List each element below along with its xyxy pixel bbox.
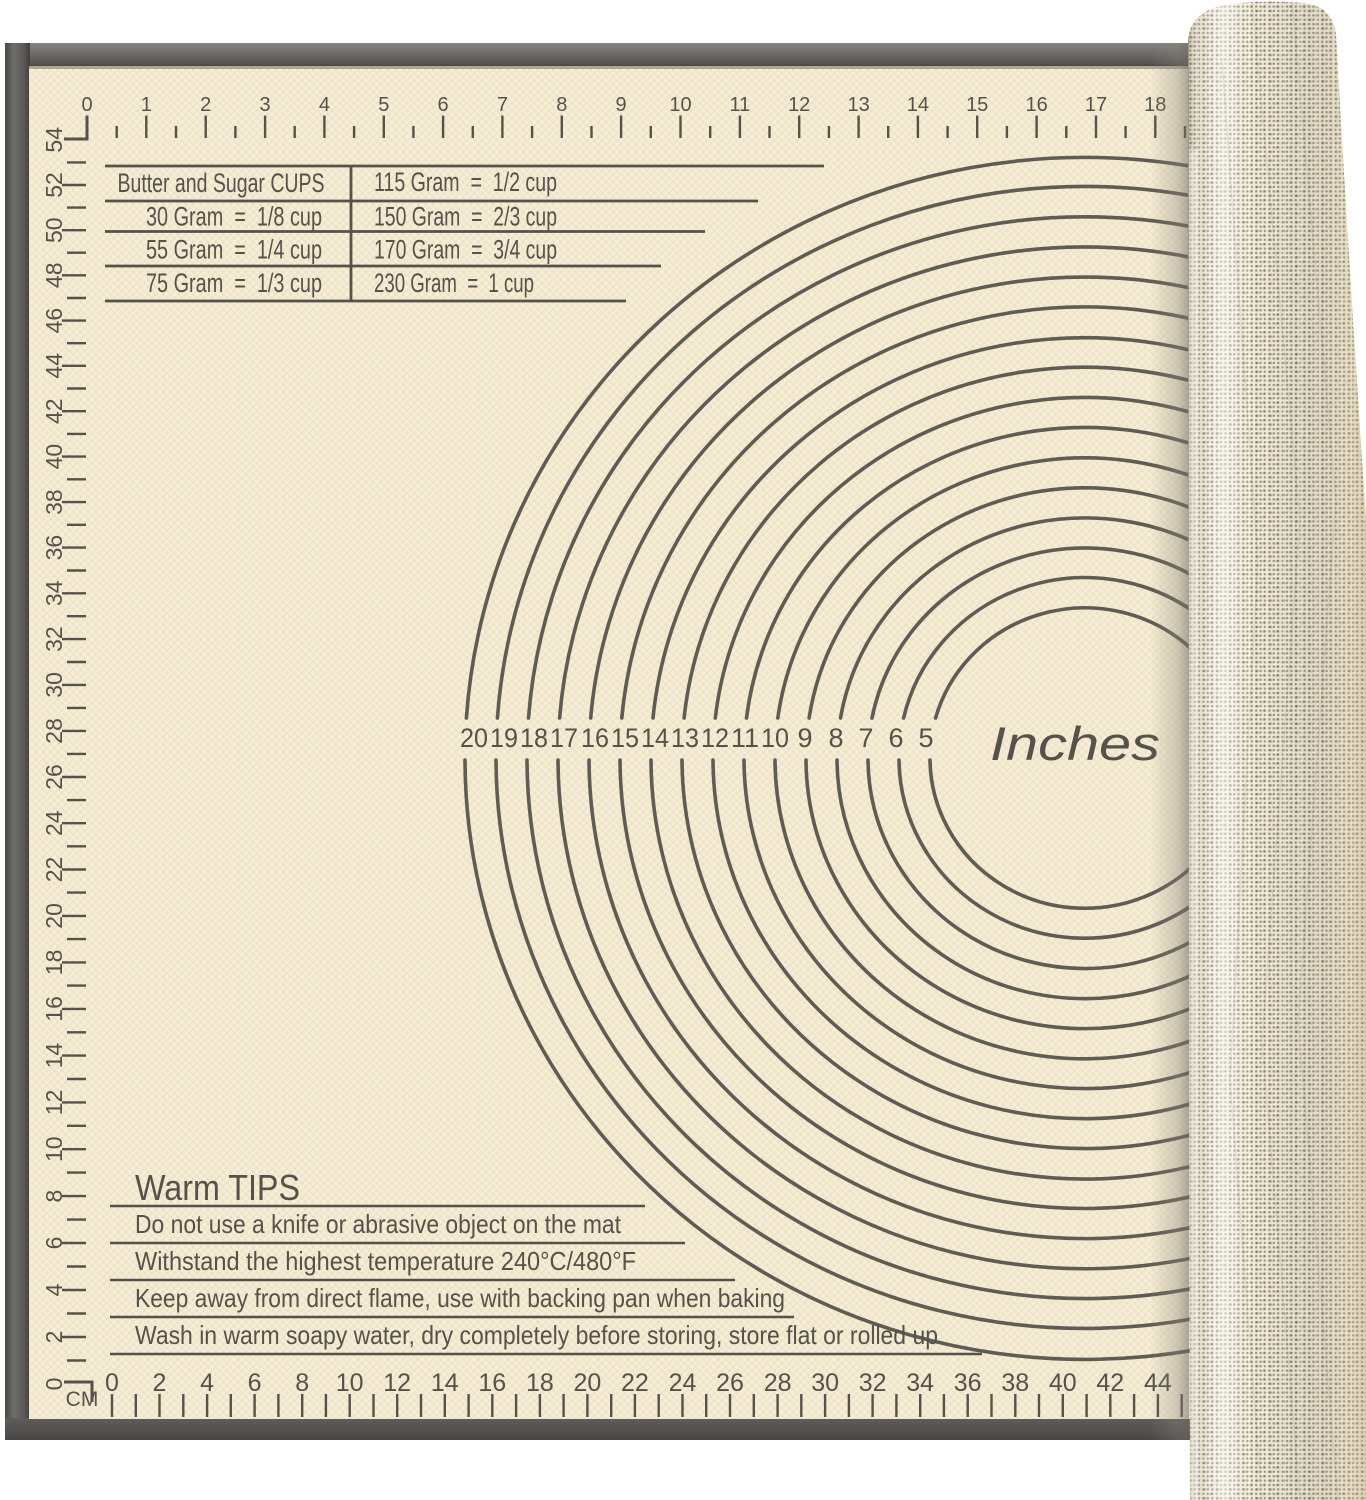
svg-text:40: 40 [41,444,67,470]
svg-text:6: 6 [41,1237,67,1250]
svg-text:34: 34 [41,580,67,606]
svg-text:36: 36 [954,1369,982,1397]
svg-text:16: 16 [41,996,67,1022]
svg-text:10: 10 [41,1136,67,1162]
svg-text:10: 10 [669,94,691,116]
svg-text:16: 16 [478,1369,506,1397]
svg-text:0: 0 [105,1369,119,1397]
svg-text:12: 12 [383,1369,411,1397]
svg-text:18: 18 [41,950,67,976]
svg-text:Wash in warm soapy water, dry: Wash in warm soapy water, dry completely… [135,1320,938,1350]
svg-text:24: 24 [41,810,67,836]
svg-text:34: 34 [906,1369,934,1397]
svg-text:44: 44 [41,353,67,379]
svg-text:18: 18 [520,723,548,753]
svg-text:22: 22 [41,857,67,883]
svg-text:Warm TIPS: Warm TIPS [135,1167,300,1208]
svg-text:6: 6 [438,94,449,116]
svg-text:54: 54 [41,127,67,153]
svg-text:13: 13 [847,94,869,116]
svg-text:10: 10 [336,1369,364,1397]
svg-text:42: 42 [41,398,67,424]
svg-text:13: 13 [671,723,699,753]
svg-text:5: 5 [378,94,389,116]
svg-text:12: 12 [41,1090,67,1116]
svg-text:8: 8 [41,1190,67,1203]
svg-text:15: 15 [966,94,988,116]
svg-text:8: 8 [295,1369,309,1397]
svg-text:18: 18 [526,1369,554,1397]
svg-text:115 Gram = 1/2 cup: 115 Gram = 1/2 cup [374,167,557,197]
svg-text:26: 26 [41,764,67,790]
svg-text:2: 2 [153,1369,167,1397]
svg-text:170 Gram = 3/4 cup: 170 Gram = 3/4 cup [374,235,557,265]
svg-text:46: 46 [41,308,67,334]
svg-text:30 Gram = 1/8 cup: 30 Gram = 1/8 cup [146,202,322,232]
svg-text:50: 50 [41,217,67,243]
svg-text:14: 14 [641,723,669,753]
svg-text:Do not use a knife or abrasive: Do not use a knife or abrasive object on… [135,1209,622,1239]
svg-text:30: 30 [41,672,67,698]
svg-text:7: 7 [858,723,873,753]
svg-text:6: 6 [888,723,903,753]
svg-text:Withstand the highest temperat: Withstand the highest temperature 240°C/… [135,1246,636,1276]
svg-text:5: 5 [918,723,933,753]
svg-text:11: 11 [731,723,759,753]
svg-text:7: 7 [497,94,508,116]
svg-text:17: 17 [550,723,578,753]
svg-text:20: 20 [41,903,67,929]
svg-text:10: 10 [761,723,789,753]
svg-text:38: 38 [41,489,67,515]
svg-text:55 Gram = 1/4 cup: 55 Gram = 1/4 cup [146,235,322,265]
svg-text:17: 17 [1085,94,1107,116]
svg-text:22: 22 [621,1369,649,1397]
svg-text:38: 38 [1001,1369,1029,1397]
svg-text:0: 0 [41,1378,67,1391]
svg-text:20: 20 [573,1369,601,1397]
svg-text:24: 24 [669,1369,697,1397]
svg-text:30: 30 [811,1369,839,1397]
svg-text:12: 12 [701,723,729,753]
svg-text:14: 14 [41,1043,67,1069]
svg-text:48: 48 [41,263,67,289]
svg-text:6: 6 [248,1369,262,1397]
svg-text:28: 28 [41,718,67,744]
svg-text:26: 26 [716,1369,744,1397]
svg-text:4: 4 [41,1283,67,1296]
svg-text:0: 0 [81,94,92,116]
svg-text:Keep away from direct flame, u: Keep away from direct flame, use with ba… [135,1283,785,1313]
svg-text:4: 4 [319,94,330,116]
svg-text:36: 36 [41,535,67,561]
svg-text:Inches: Inches [990,717,1160,770]
svg-text:Butter and Sugar CUPS: Butter and Sugar CUPS [118,168,325,198]
svg-text:12: 12 [788,94,810,116]
svg-text:16: 16 [1025,94,1047,116]
svg-text:15: 15 [611,723,639,753]
svg-text:3: 3 [260,94,271,116]
svg-text:32: 32 [41,626,67,652]
svg-text:75 Gram = 1/3 cup: 75 Gram = 1/3 cup [146,268,322,298]
svg-text:19: 19 [490,723,518,753]
svg-text:42: 42 [1096,1369,1124,1397]
svg-text:2: 2 [200,94,211,116]
svg-text:14: 14 [907,94,929,116]
svg-text:230 Gram = 1 cup: 230 Gram = 1 cup [374,268,534,298]
svg-text:8: 8 [556,94,567,116]
svg-text:9: 9 [797,723,812,753]
svg-text:9: 9 [616,94,627,116]
svg-text:28: 28 [764,1369,792,1397]
svg-text:20: 20 [460,723,488,753]
svg-text:52: 52 [41,172,67,198]
svg-text:CM: CM [66,1388,99,1411]
svg-text:4: 4 [200,1369,214,1397]
svg-text:150 Gram = 2/3 cup: 150 Gram = 2/3 cup [374,202,557,232]
svg-text:2: 2 [41,1331,67,1344]
svg-text:8: 8 [828,723,843,753]
svg-text:40: 40 [1049,1369,1077,1397]
svg-text:16: 16 [581,723,609,753]
svg-text:1: 1 [141,94,152,116]
svg-text:32: 32 [859,1369,887,1397]
svg-text:14: 14 [431,1369,459,1397]
svg-text:11: 11 [730,94,751,116]
